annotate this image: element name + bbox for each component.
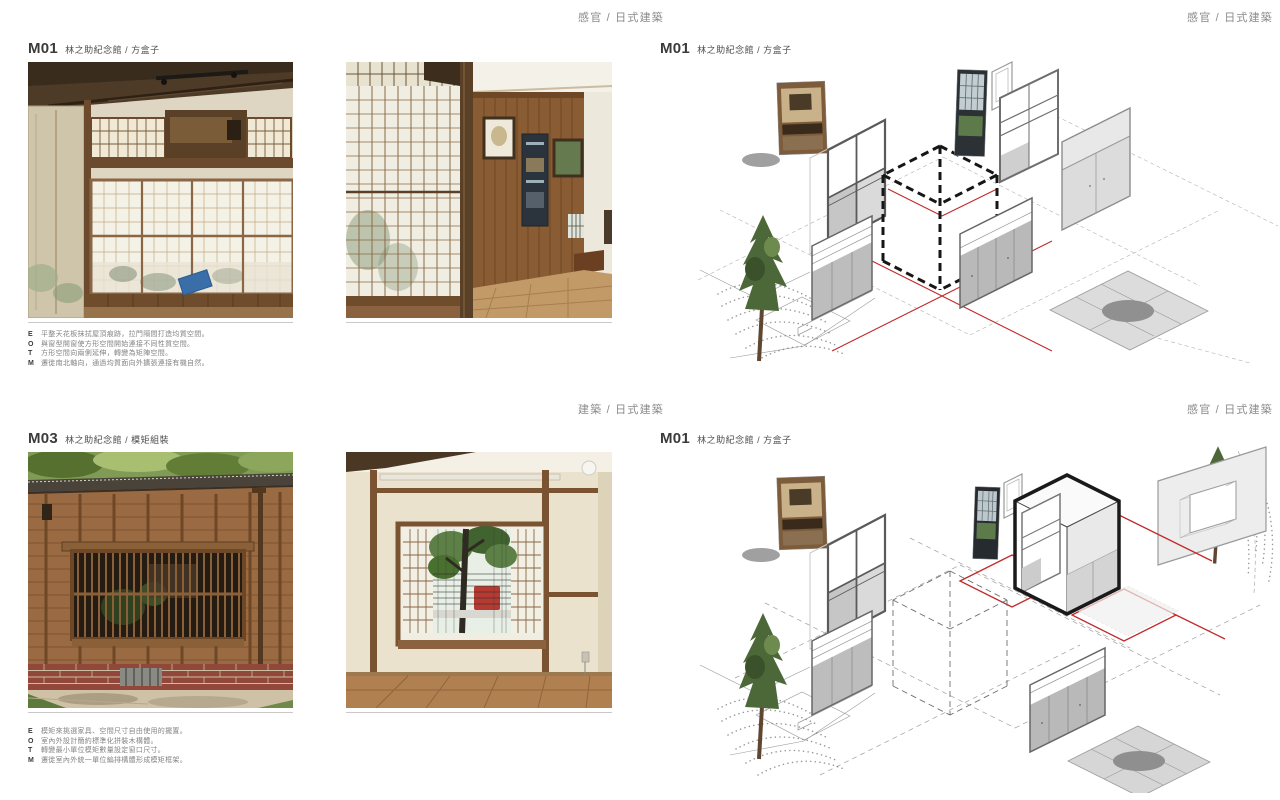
diagram-page-title-m01: M01 林之助紀念館 / 方盒子 — [660, 40, 792, 57]
note-text: 平整天花板抹拭屋頂痕跡，拉門隔間打造均質空間。 — [41, 329, 209, 339]
light-wall-panel — [1062, 108, 1130, 230]
note-key: M — [28, 360, 36, 367]
photo-page-title-m01: M01 林之助紀念館 / 方盒子 — [28, 40, 160, 57]
concept-notes-m01: E平整天花板抹拭屋頂痕跡，拉門隔間打造均質空間。 O與窗型開窗使方形空間開始連接… — [28, 329, 209, 367]
note-text: 模矩來挑選家具、空間尺寸自由使用的擺置。 — [41, 726, 187, 736]
note-text: 遷徙南北軸向，通過均質面向外擴張連接有機自然。 — [41, 358, 209, 368]
photo-japanese-corridor-wood-wall — [346, 62, 612, 318]
note-row: M遷徙室內外統一單位編排構體形成模矩框架。 — [28, 755, 187, 765]
wall-panel-sliding-right — [1030, 648, 1105, 752]
page-subtitle: 林之助紀念館 / 方盒子 — [65, 43, 160, 56]
table-ellipse — [742, 548, 780, 562]
note-row: T轉變最小單位模矩數量設定窗口尺寸。 — [28, 745, 187, 755]
note-key: T — [28, 747, 36, 754]
page-header-top-left: 感官 / 日式建築 — [578, 9, 664, 25]
table-ellipse — [742, 153, 780, 167]
wall-panel-sliding-left — [798, 611, 872, 730]
note-key: M — [28, 757, 36, 764]
note-row: O室內外設計簡約標準化拼裝木構體。 — [28, 736, 187, 746]
photo-divider-rule — [28, 322, 293, 323]
note-text: 室內外設計簡約標準化拼裝木構體。 — [41, 736, 158, 746]
solid-cube — [1015, 475, 1119, 614]
tree-image — [739, 215, 787, 361]
note-key: E — [28, 728, 36, 735]
note-row: M遷徙南北軸向，通過均質面向外擴張連接有機自然。 — [28, 358, 209, 368]
photo-divider-rule — [346, 322, 612, 323]
note-text: 遷徙室內外統一單位編排構體形成模矩框架。 — [41, 755, 187, 765]
photo-thumbnail-window — [973, 487, 1000, 560]
note-key: O — [28, 341, 36, 348]
photo-thumbnail-interior — [777, 476, 827, 550]
note-row: E模矩來挑選家具、空間尺寸自由使用的擺置。 — [28, 726, 187, 736]
note-key: O — [28, 738, 36, 745]
page-header-bottom-left: 建築 / 日式建築 — [578, 401, 664, 417]
page-code: M01 — [660, 40, 690, 57]
note-text: 方形空間向兩側延伸，轉變為矩陣空間。 — [41, 348, 172, 358]
page-code: M03 — [28, 430, 58, 447]
photo-divider-rule — [28, 712, 293, 713]
photo-thumbnail-interior — [777, 81, 827, 155]
page-header-top-right: 感官 / 日式建築 — [1187, 9, 1273, 25]
photo-japanese-room-shoji-window — [28, 62, 293, 318]
wall-panel-sliding-left — [798, 216, 872, 335]
isometric-diagram-dashed-cube — [660, 58, 1280, 388]
note-row: T方形空間向兩側延伸，轉變為矩陣空間。 — [28, 348, 209, 358]
floor-slab — [1068, 726, 1210, 793]
isometric-diagram-solid-cube — [660, 443, 1280, 793]
photo-interior-lattice-window-room — [346, 452, 612, 708]
note-key: T — [28, 350, 36, 357]
note-row: E平整天花板抹拭屋頂痕跡，拉門隔間打造均質空間。 — [28, 329, 209, 339]
page-subtitle: 林之助紀念館 / 模矩組裝 — [65, 433, 169, 446]
concept-notes-m03: E模矩來挑選家具、空間尺寸自由使用的擺置。 O室內外設計簡約標準化拼裝木構體。 … — [28, 726, 187, 764]
floor-slab — [1050, 271, 1208, 350]
note-text: 與窗型開窗使方形空間開始連接不同性質空間。 — [41, 339, 194, 349]
page-header-bottom-right: 感官 / 日式建築 — [1187, 401, 1273, 417]
thin-dashed-cube — [893, 571, 1007, 715]
photo-wooden-facade-lattice-window — [28, 452, 293, 708]
wall-panel-square-window — [1158, 447, 1266, 565]
note-key: E — [28, 331, 36, 338]
page-subtitle: 林之助紀念館 / 方盒子 — [697, 43, 792, 56]
photo-divider-rule — [346, 712, 612, 713]
photo-page-title-m03: M03 林之助紀念館 / 模矩組裝 — [28, 430, 169, 447]
note-row: O與窗型開窗使方形空間開始連接不同性質空間。 — [28, 339, 209, 349]
note-text: 轉變最小單位模矩數量設定窗口尺寸。 — [41, 745, 165, 755]
photo-thumbnail-window — [955, 70, 988, 157]
page-code: M01 — [28, 40, 58, 57]
